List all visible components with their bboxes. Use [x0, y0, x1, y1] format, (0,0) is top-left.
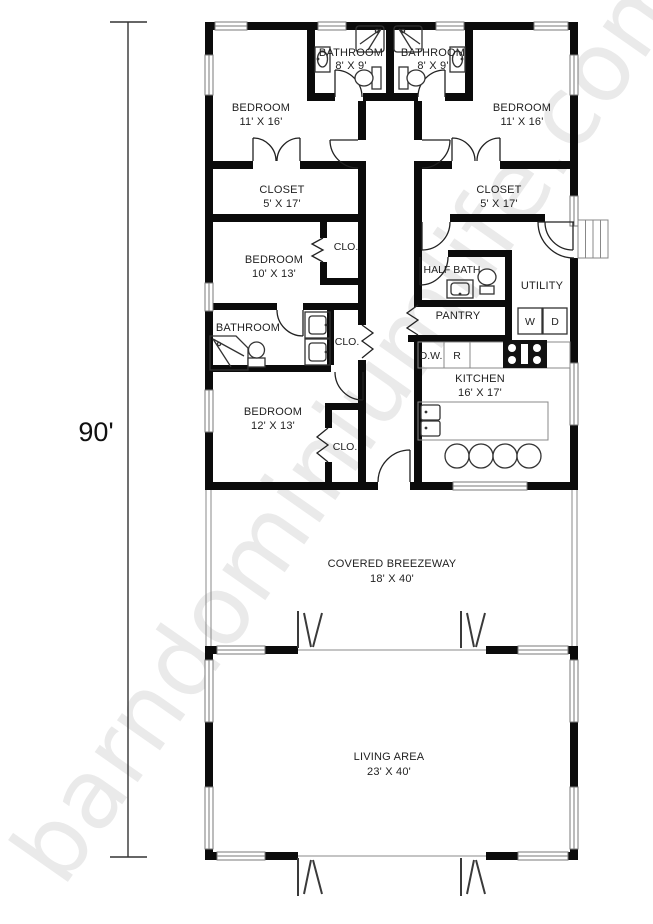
dims-closet-right: 5' X 17': [480, 198, 518, 210]
exterior-steps: [578, 220, 608, 258]
label-pantry: PANTRY: [436, 310, 481, 322]
label-clo-3: CLO.: [333, 441, 358, 453]
kitchen-island: [418, 402, 548, 440]
dims-bathroom-top-left: 8' X 9': [335, 60, 366, 72]
label-bathroom-top-right: BATHROOM: [401, 47, 465, 59]
sink-half-bath: [447, 280, 473, 298]
label-living-area: LIVING AREA: [354, 751, 425, 763]
double-sinks-lower-bathroom: [305, 312, 330, 365]
toilet-half-bath: [478, 269, 496, 294]
dims-bedroom-top-right: 11' X 16': [500, 116, 543, 128]
dims-bathroom-top-right: 8' X 9': [417, 60, 448, 72]
label-closet-right: CLOSET: [476, 184, 521, 196]
toilet-lower-bathroom: [248, 342, 265, 367]
dimension-line: 90': [78, 22, 147, 857]
dims-living-area: 23' X 40': [367, 766, 411, 778]
label-bedroom-lower: BEDROOM: [244, 406, 302, 418]
bar-stools: [445, 444, 541, 468]
dims-bedroom-lower: 12' X 13': [251, 420, 295, 432]
dims-breezeway: 18' X 40': [370, 573, 414, 585]
label-breezeway: COVERED BREEZEWAY: [328, 558, 457, 570]
dimension-label: 90': [78, 417, 113, 447]
label-dryer: D: [551, 316, 559, 328]
label-dishwasher: D.W.: [420, 350, 443, 362]
label-kitchen: KITCHEN: [455, 373, 505, 385]
label-clo-1: CLO.: [334, 241, 359, 253]
label-clo-2: CLO.: [335, 336, 360, 348]
room-labels: BATHROOM 8' X 9' BATHROOM 8' X 9' BEDROO…: [216, 47, 564, 778]
dims-bedroom-middle: 10' X 13': [252, 268, 296, 280]
label-closet-left: CLOSET: [259, 184, 304, 196]
dims-bedroom-top-left: 11' X 16': [239, 116, 282, 128]
label-washer: W: [525, 316, 535, 328]
label-bedroom-top-left: BEDROOM: [232, 102, 290, 114]
floor-plan-drawing: 90': [0, 0, 653, 924]
shower-lower-bathroom: [210, 336, 248, 370]
label-range: R: [453, 350, 461, 362]
label-bedroom-middle: BEDROOM: [245, 254, 303, 266]
dims-kitchen: 16' X 17': [458, 387, 502, 399]
floor-plan-canvas: barndominiumlife.com 90': [0, 0, 653, 924]
door-swings: [253, 70, 574, 482]
label-utility: UTILITY: [521, 280, 564, 292]
label-bathroom-lower: BATHROOM: [216, 322, 280, 334]
dims-closet-left: 5' X 17': [263, 198, 301, 210]
windows: [205, 22, 578, 860]
label-bedroom-top-right: BEDROOM: [493, 102, 551, 114]
label-half-bath: HALF BATH: [424, 264, 481, 276]
label-bathroom-top-left: BATHROOM: [319, 47, 383, 59]
stove: [503, 340, 547, 368]
